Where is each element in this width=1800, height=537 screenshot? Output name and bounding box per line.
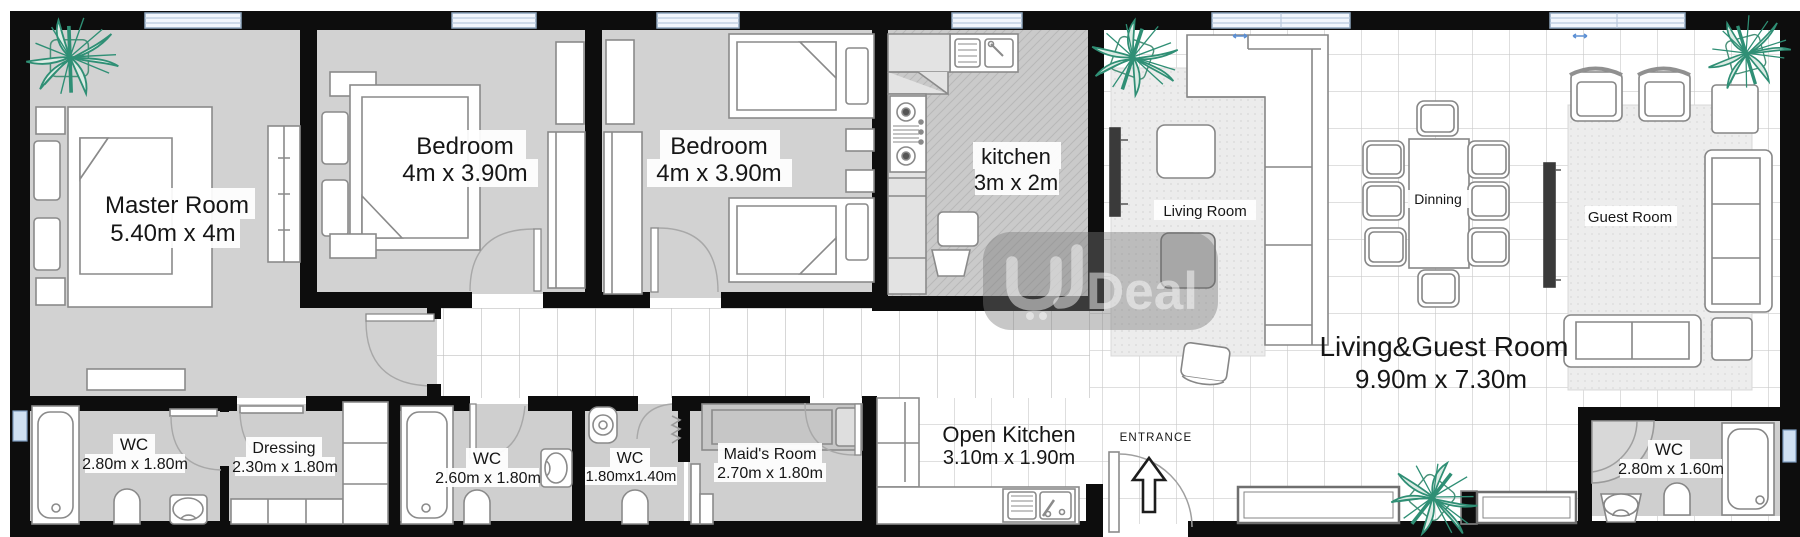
svg-text:Open Kitchen: Open Kitchen xyxy=(942,422,1075,447)
svg-text:Bedroom: Bedroom xyxy=(416,133,513,160)
svg-text:Living&Guest Room: Living&Guest Room xyxy=(1319,331,1568,362)
svg-text:Maid's Room: Maid's Room xyxy=(724,446,817,463)
svg-text:kitchen: kitchen xyxy=(981,144,1051,169)
svg-text:5.40m x 4m: 5.40m x 4m xyxy=(110,220,235,247)
svg-text:2.30m x 1.80m: 2.30m x 1.80m xyxy=(232,459,338,476)
svg-text:WC: WC xyxy=(473,449,501,468)
svg-text:Master Room: Master Room xyxy=(105,192,249,219)
svg-text:4m x 3.90m: 4m x 3.90m xyxy=(656,160,781,187)
svg-text:3.10m x 1.90m: 3.10m x 1.90m xyxy=(943,447,1075,469)
svg-text:2.70m x 1.80m: 2.70m x 1.80m xyxy=(717,465,823,482)
svg-text:WC: WC xyxy=(120,435,148,454)
svg-text:2.80m x 1.60m: 2.80m x 1.60m xyxy=(1618,461,1724,478)
svg-text:Dressing: Dressing xyxy=(252,440,315,457)
svg-text:WC: WC xyxy=(1655,440,1683,459)
svg-text:2.60m x 1.80m: 2.60m x 1.80m xyxy=(435,470,541,487)
svg-text:Bedroom: Bedroom xyxy=(670,133,767,160)
svg-text:WC: WC xyxy=(617,450,644,467)
svg-text:3m x 2m: 3m x 2m xyxy=(974,170,1058,195)
svg-text:Dinning: Dinning xyxy=(1414,191,1461,207)
svg-text:9.90m x 7.30m: 9.90m x 7.30m xyxy=(1355,364,1527,394)
svg-text:2.80m x 1.80m: 2.80m x 1.80m xyxy=(82,456,188,473)
svg-text:Guest Room: Guest Room xyxy=(1588,209,1672,226)
svg-text:1.80mx1.40m: 1.80mx1.40m xyxy=(586,468,677,485)
svg-text:Deal: Deal xyxy=(1086,262,1198,321)
svg-text:Living Room: Living Room xyxy=(1163,203,1246,220)
svg-text:ENTRANCE: ENTRANCE xyxy=(1120,432,1193,444)
svg-text:4m x 3.90m: 4m x 3.90m xyxy=(402,160,527,187)
